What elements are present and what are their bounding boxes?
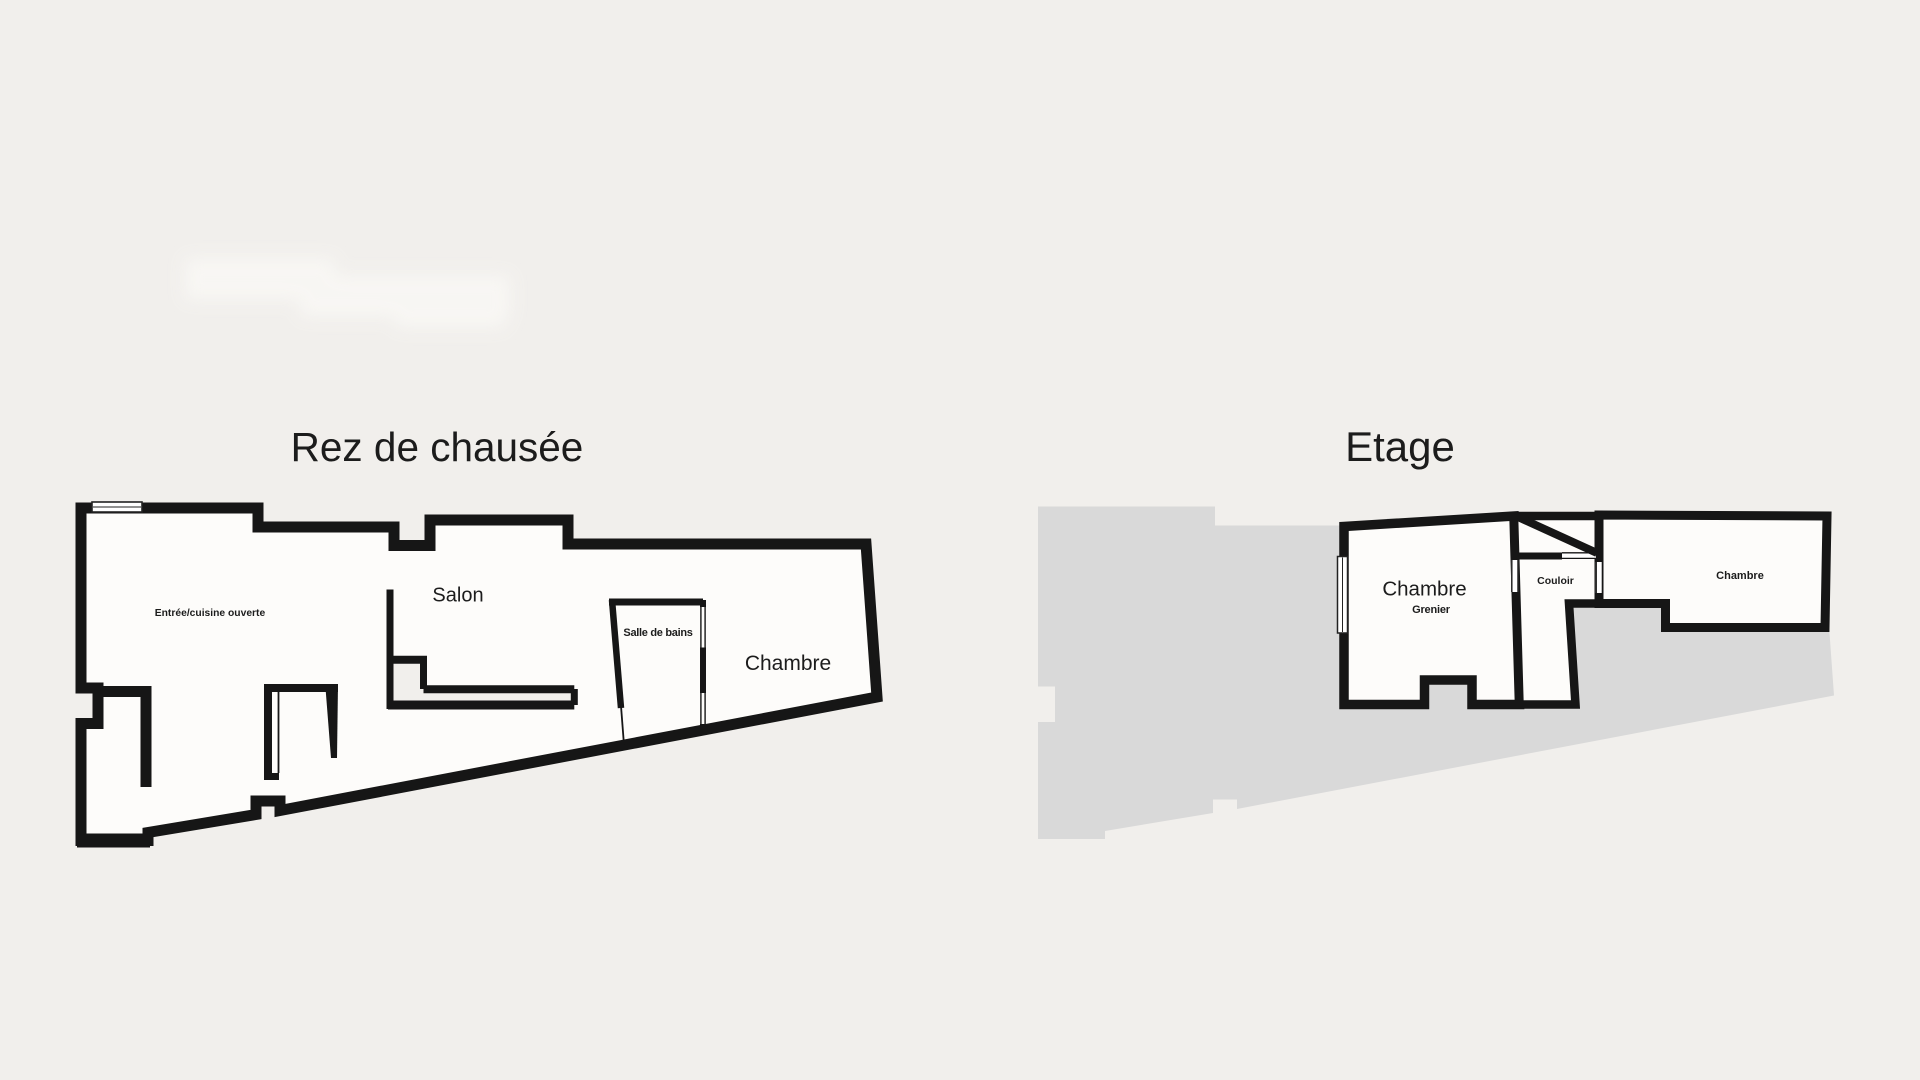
svg-text:Rez de chausée: Rez de chausée	[291, 424, 584, 470]
svg-text:Salle de bains: Salle de bains	[623, 627, 692, 639]
svg-text:Grenier: Grenier	[1412, 604, 1451, 616]
svg-text:Chambre: Chambre	[1716, 570, 1764, 582]
svg-text:Entrée/cuisine ouverte: Entrée/cuisine ouverte	[155, 608, 266, 619]
svg-text:Etage: Etage	[1345, 423, 1455, 470]
svg-text:Chambre: Chambre	[1382, 578, 1466, 601]
svg-text:Chambre: Chambre	[745, 652, 831, 675]
svg-text:Salon: Salon	[432, 585, 483, 607]
svg-text:Couloir: Couloir	[1537, 575, 1574, 587]
